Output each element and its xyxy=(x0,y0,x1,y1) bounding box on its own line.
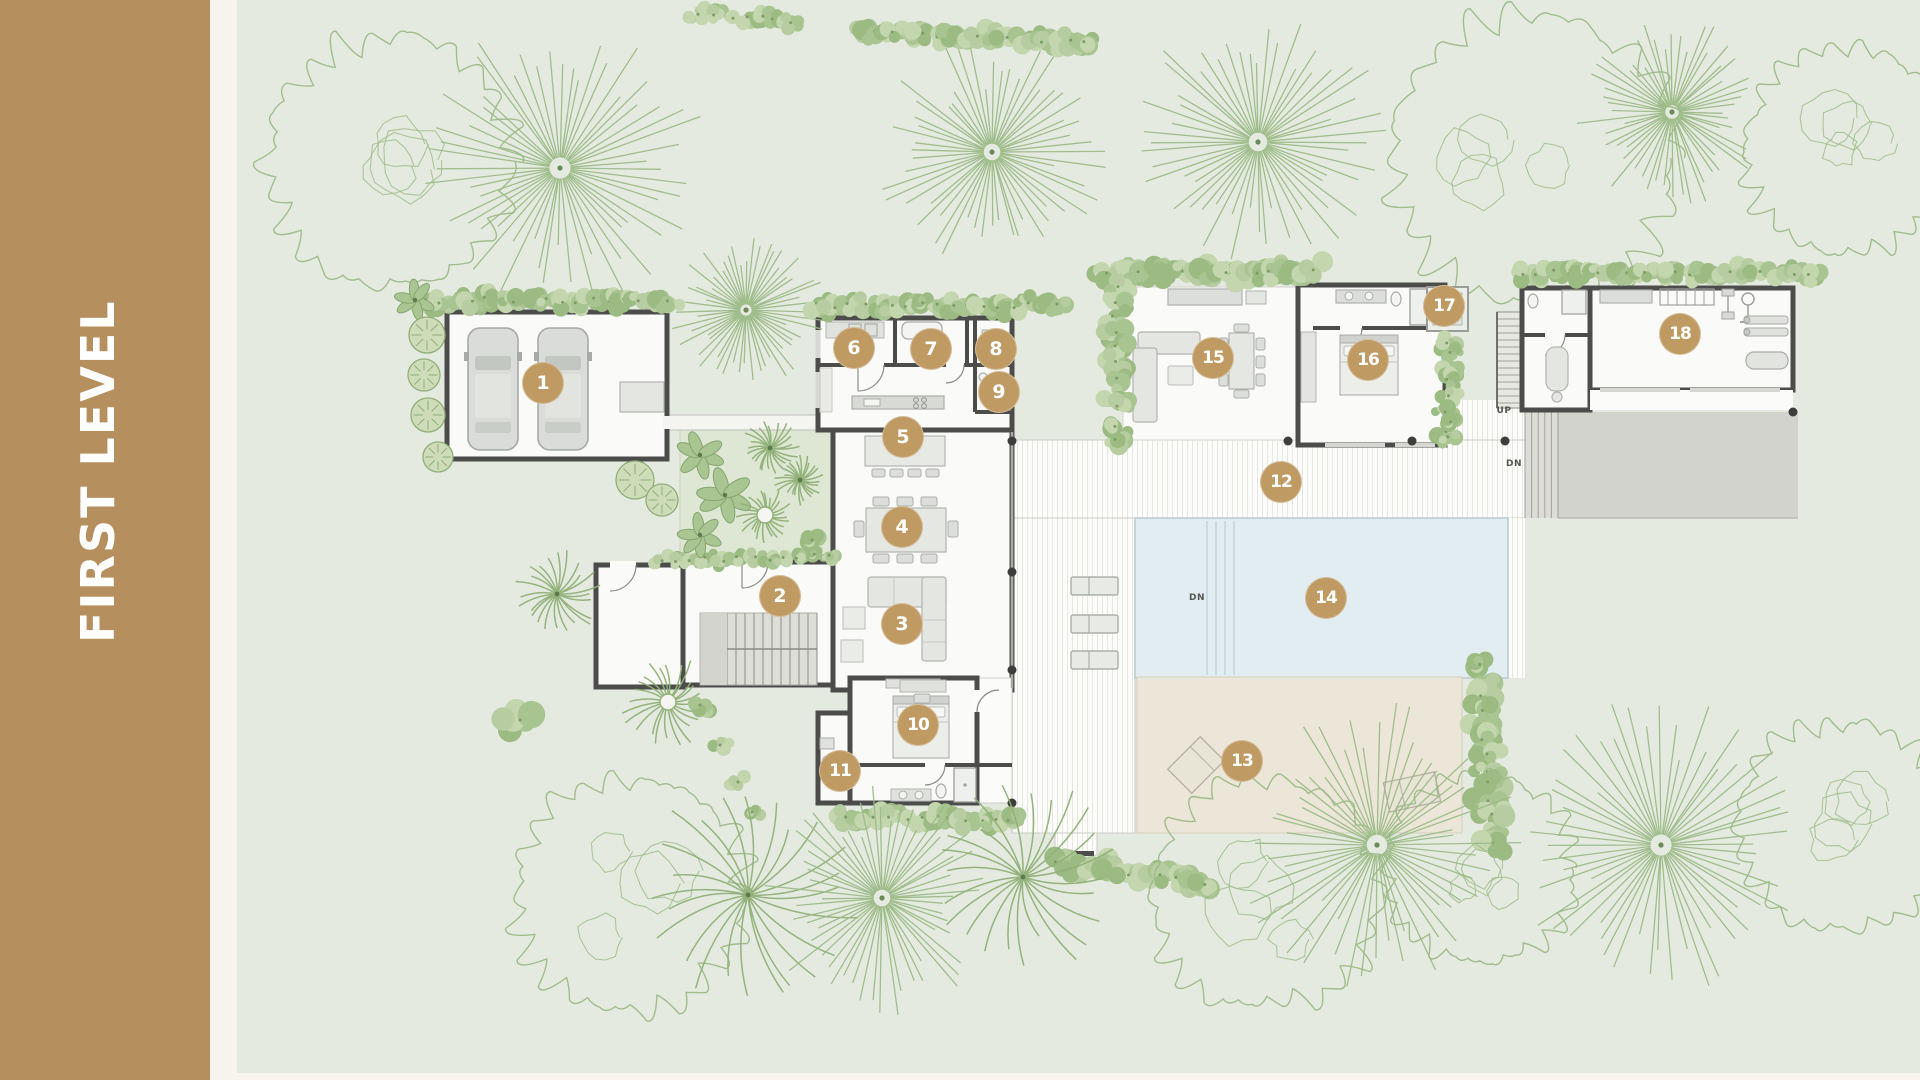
page-title: FIRST LEVEL xyxy=(52,280,144,662)
stair-direction-label: UP xyxy=(1497,406,1512,416)
floor-plan-drawing xyxy=(0,0,1920,1080)
room-marker-16: 16 xyxy=(1347,339,1389,381)
stair-direction-label: DN xyxy=(1506,459,1522,469)
room-marker-11: 11 xyxy=(819,750,861,792)
room-marker-14: 14 xyxy=(1305,577,1347,619)
room-marker-3: 3 xyxy=(881,603,923,645)
room-marker-10: 10 xyxy=(897,704,939,746)
room-marker-12: 12 xyxy=(1260,461,1302,503)
room-marker-5: 5 xyxy=(882,416,924,458)
room-marker-15: 15 xyxy=(1192,337,1234,379)
room-marker-2: 2 xyxy=(759,575,801,617)
room-marker-7: 7 xyxy=(910,328,952,370)
floor-plan-page: FIRST LEVEL 123456789101112131415161718U… xyxy=(0,0,1920,1080)
room-marker-8: 8 xyxy=(975,328,1017,370)
room-marker-1: 1 xyxy=(522,362,564,404)
sidebar: FIRST LEVEL xyxy=(0,0,210,1080)
room-marker-13: 13 xyxy=(1221,740,1263,782)
room-marker-18: 18 xyxy=(1659,313,1701,355)
room-marker-6: 6 xyxy=(833,327,875,369)
stair-direction-label: DN xyxy=(1189,593,1205,603)
room-marker-17: 17 xyxy=(1423,285,1465,327)
room-marker-4: 4 xyxy=(881,506,923,548)
room-marker-9: 9 xyxy=(978,371,1020,413)
